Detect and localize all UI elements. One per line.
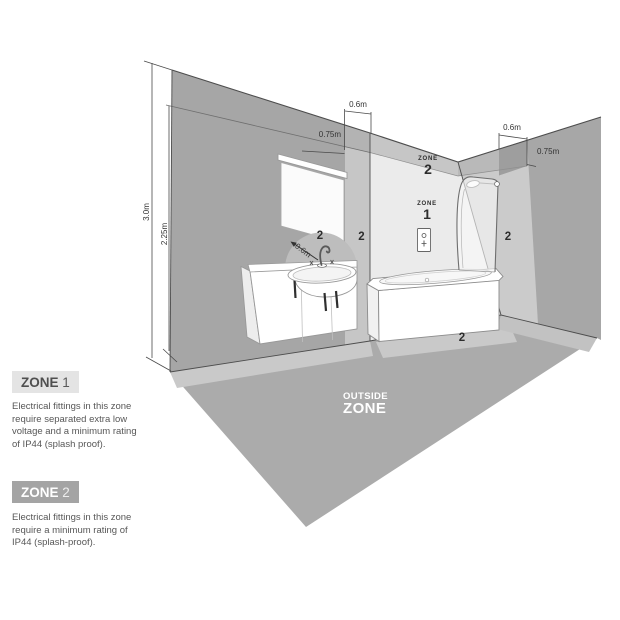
marker-left-wall-band: 2 (358, 231, 364, 243)
dim-left-band-depth: 0.75m (319, 130, 342, 139)
legend-zone2-badge-word: ZONE (21, 485, 59, 500)
shower-screen (457, 177, 499, 272)
legend-zone1-badge: ZONE 1 (12, 371, 79, 393)
dim-right-band-depth: 0.75m (537, 147, 560, 156)
legend-zone2-badge-number: 2 (62, 485, 70, 500)
dim-zone-height: 2.25m (160, 223, 169, 246)
outside-zone-label-line2: ZONE (343, 400, 386, 417)
legend-zone1-description: Electrical fittings in this zone require… (12, 401, 187, 451)
legend-zone2-badge: ZONE 2 (12, 481, 79, 503)
shower-control (418, 229, 431, 252)
screen-hinge (495, 182, 500, 187)
bath-drain (425, 278, 429, 282)
marker-floor: 2 (459, 332, 465, 344)
bathroom-zones-diagram: 3.0m 2.25m 0.6m 0.75m 0.6m 0.75m (0, 0, 620, 620)
zone1-wall-number: 1 (423, 206, 431, 222)
legend-zone2-description: Electrical fittings in this zone require… (12, 512, 187, 550)
bathtub (367, 266, 503, 341)
legend-zone1-badge-number: 1 (62, 375, 70, 390)
legend-zone1-badge-word: ZONE (21, 375, 59, 390)
bath-end-panel (367, 284, 379, 342)
marker-basin-zone: 2 (317, 230, 323, 242)
marker-right-wall: 2 (505, 231, 511, 243)
dim-room-height: 3.0m (142, 203, 151, 221)
zone2-wall-number: 2 (424, 161, 432, 177)
dim-right-band-width: 0.6m (503, 123, 521, 132)
dim-left-band-width: 0.6m (349, 100, 367, 109)
